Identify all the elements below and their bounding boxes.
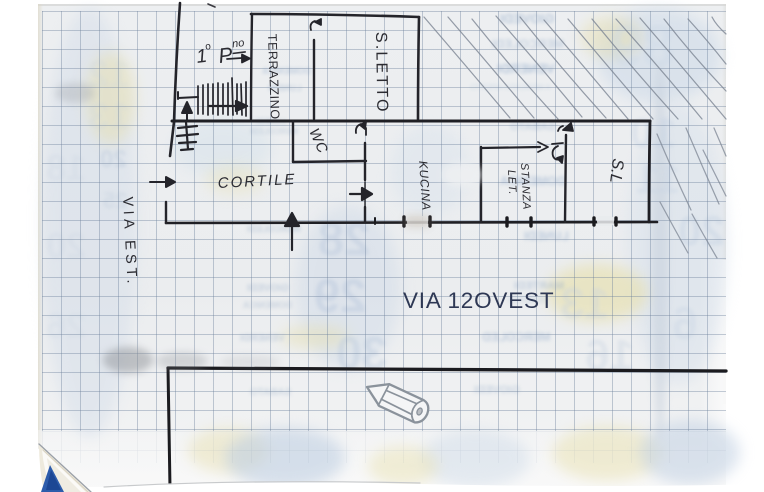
svg-text:VIA 12OVEST: VIA 12OVEST [403, 288, 554, 313]
svg-text:CORTILE: CORTILE [217, 171, 297, 192]
svg-text:S.LETTO: S.LETTO [372, 32, 390, 114]
svg-text:WC: WC [305, 126, 330, 156]
svg-text:o: o [205, 41, 212, 53]
svg-text:LET.: LET. [505, 170, 518, 196]
svg-text:P: P [217, 44, 234, 69]
svg-text:STANZA: STANZA [518, 163, 532, 211]
svg-text:TERRAZZINO: TERRAZZINO [265, 34, 282, 120]
svg-text:VIA EST.: VIA EST. [119, 196, 140, 288]
svg-text:S.L: S.L [606, 158, 627, 185]
svg-text:no: no [231, 37, 245, 50]
svg-text:KUCINA: KUCINA [416, 160, 433, 211]
